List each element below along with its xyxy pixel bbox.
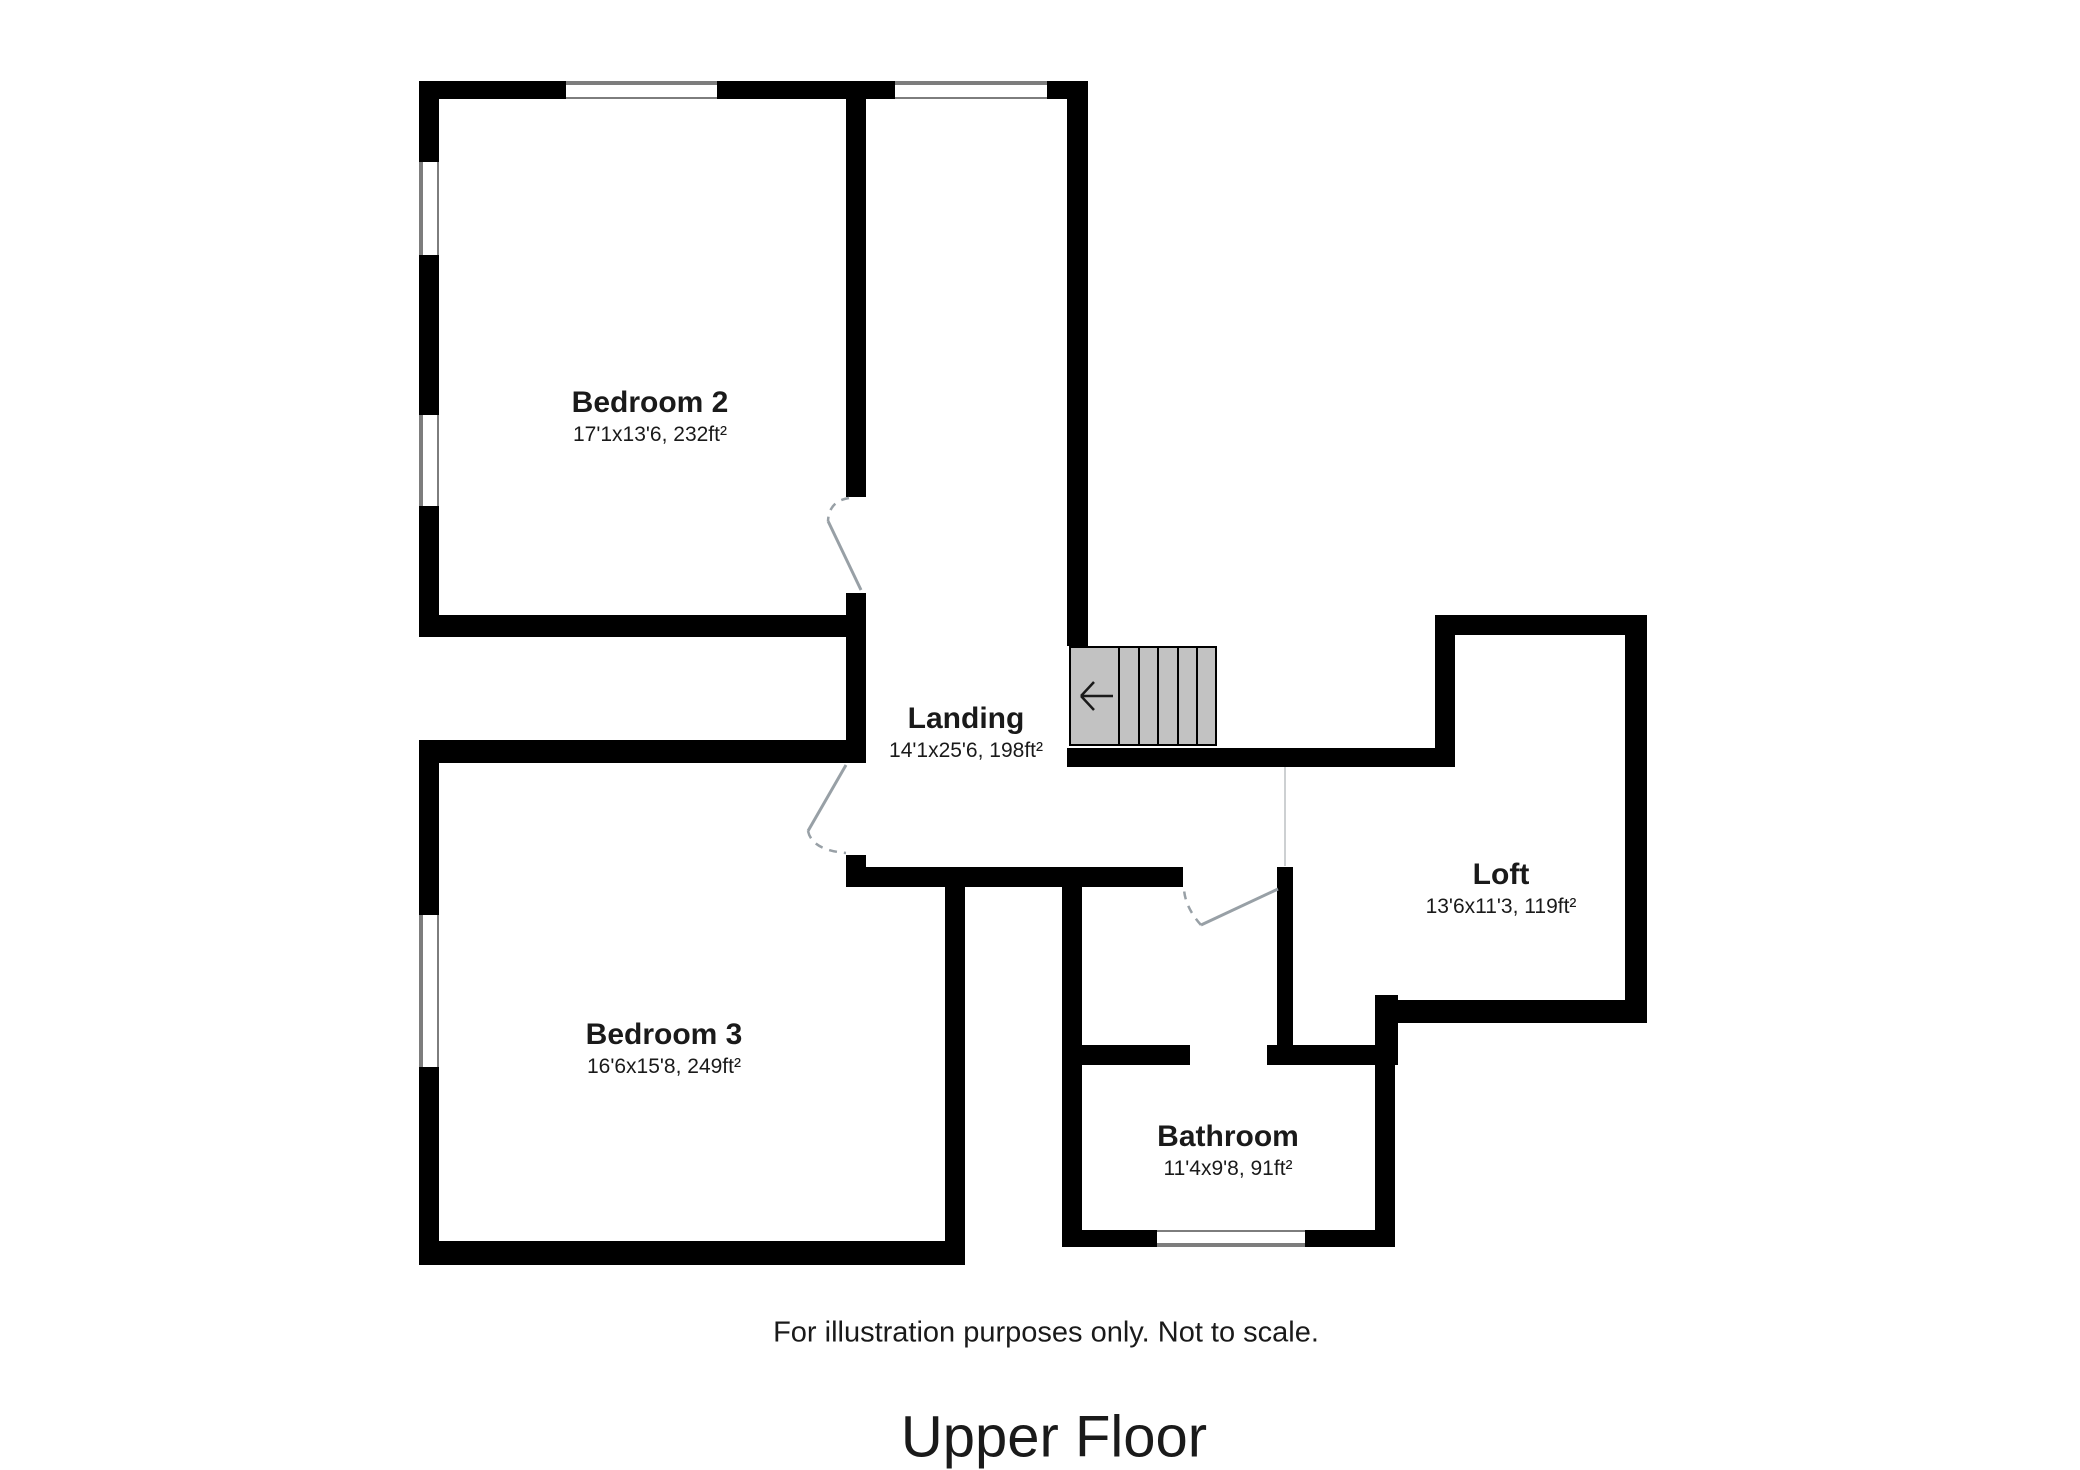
room-dimensions: 16'6x15'8, 249ft² [586, 1053, 743, 1081]
room-label-bathroom: Bathroom 11'4x9'8, 91ft² [1157, 1119, 1299, 1183]
bathroom-door-swing-arc [1184, 889, 1201, 925]
room-label-bedroom2: Bedroom 2 17'1x13'6, 232ft² [572, 385, 729, 449]
room-dimensions: 17'1x13'6, 232ft² [572, 421, 729, 449]
floor-plan: Bedroom 2 17'1x13'6, 232ft² Bedroom 3 16… [0, 0, 2080, 1470]
bedroom2-door-leaf [828, 521, 861, 590]
bedroom3-door-swing-arc [808, 831, 846, 853]
room-name: Landing [889, 701, 1043, 737]
room-name: Loft [1426, 857, 1577, 893]
room-dimensions: 13'6x11'3, 119ft² [1426, 893, 1577, 921]
page-title: Upper Floor [901, 1404, 1207, 1470]
room-label-loft: Loft 13'6x11'3, 119ft² [1426, 857, 1577, 921]
room-name: Bathroom [1157, 1119, 1299, 1155]
room-label-bedroom3: Bedroom 3 16'6x15'8, 249ft² [586, 1017, 743, 1081]
bedroom2-door-swing-arc [828, 498, 849, 521]
bedroom3-door-leaf [808, 765, 846, 831]
room-name: Bedroom 2 [572, 385, 729, 421]
room-name: Bedroom 3 [586, 1017, 743, 1053]
room-dimensions: 14'1x25'6, 198ft² [889, 737, 1043, 765]
disclaimer-text: For illustration purposes only. Not to s… [773, 1317, 1319, 1350]
room-dimensions: 11'4x9'8, 91ft² [1157, 1155, 1299, 1183]
room-label-landing: Landing 14'1x25'6, 198ft² [889, 701, 1043, 765]
bathroom-door-leaf [1201, 889, 1278, 925]
